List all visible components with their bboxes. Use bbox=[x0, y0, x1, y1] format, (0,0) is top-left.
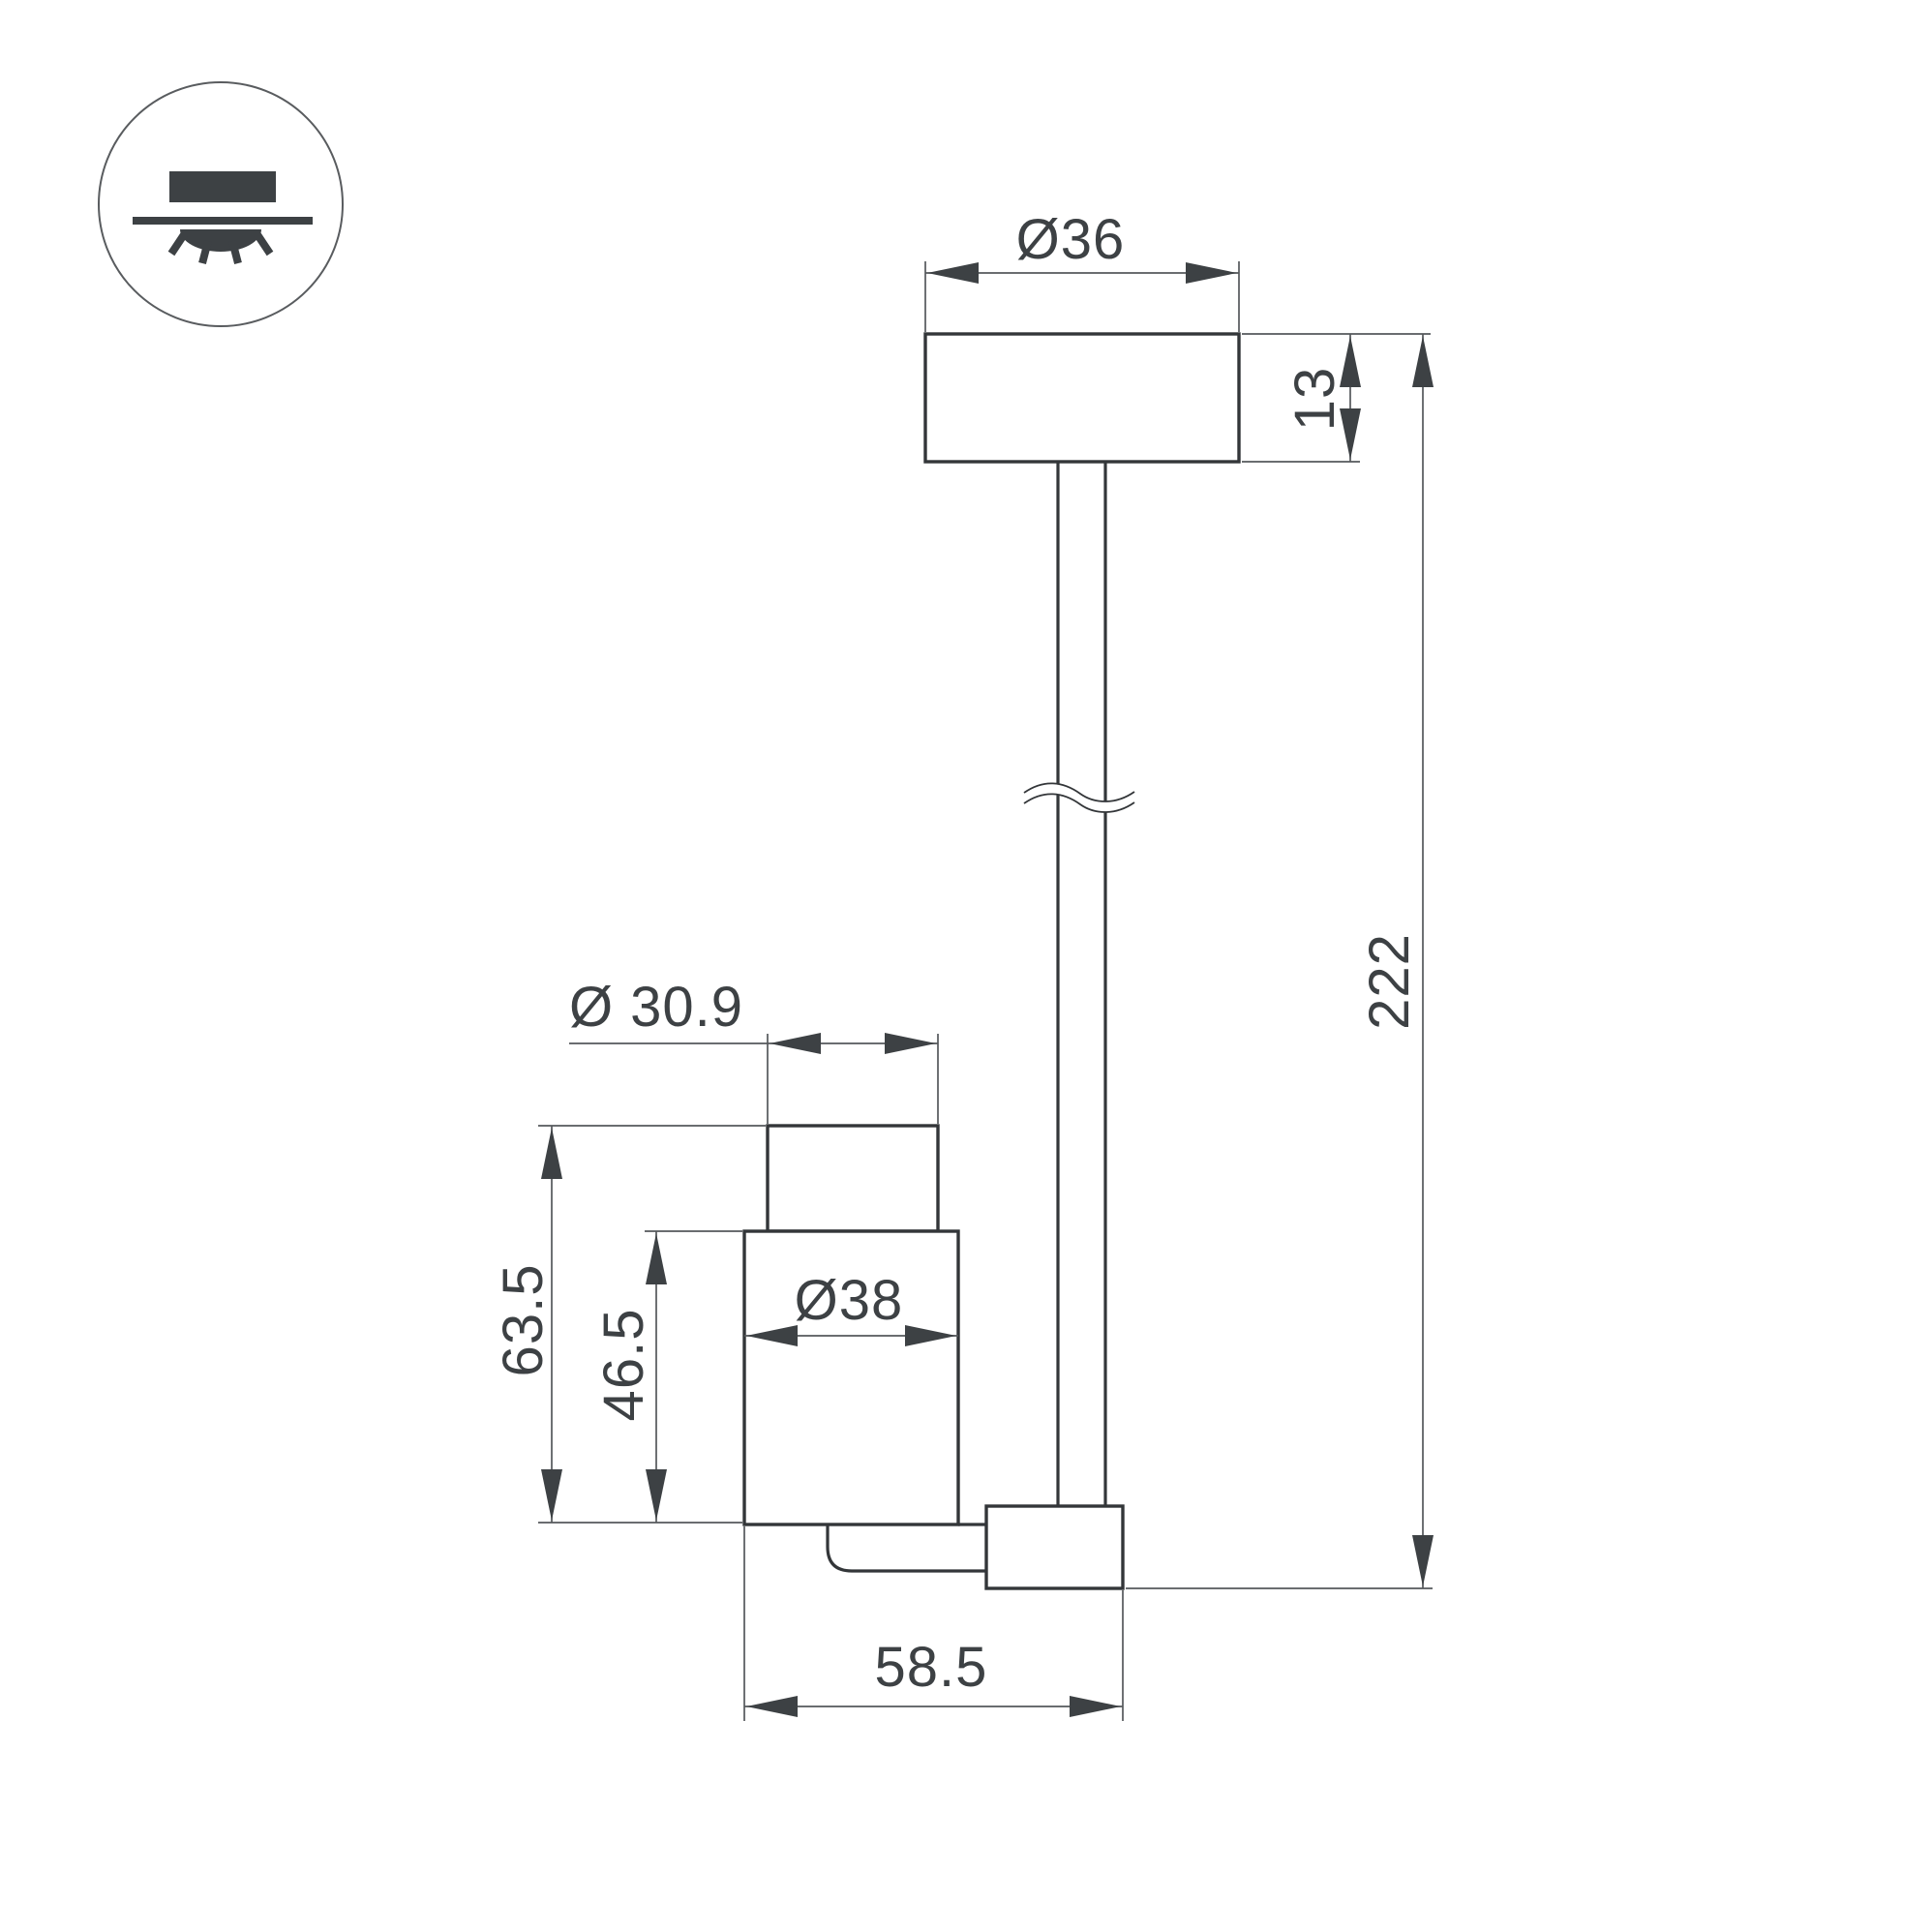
dimension-label-canopy-diameter: Ø36 bbox=[1016, 208, 1126, 271]
dimension-label-head-total-height: 63.5 bbox=[492, 1264, 555, 1377]
dimension-label-head-body-height: 46.5 bbox=[592, 1309, 655, 1422]
dimension-label-head-total-width: 58.5 bbox=[875, 1636, 988, 1699]
arrow-left-icon bbox=[927, 262, 979, 284]
dimension-head-top-diameter: Ø 30.9 bbox=[569, 976, 938, 1124]
fixture-outline bbox=[744, 334, 1239, 1588]
dimension-head-body-height: 46.5 bbox=[592, 1231, 742, 1523]
dimension-label-head-top-diameter: Ø 30.9 bbox=[569, 976, 743, 1039]
arrow-down-icon bbox=[646, 1469, 667, 1521]
arrow-down-icon bbox=[1412, 1535, 1434, 1586]
head-elbow-arm bbox=[828, 1524, 986, 1571]
technical-drawing-canvas: Ø36 13 222 Ø 30.9 63.5 bbox=[0, 0, 1932, 1932]
icon-circle-border bbox=[99, 82, 343, 326]
head-rear-cylinder bbox=[768, 1126, 938, 1231]
dimension-suspension-length: 222 bbox=[1126, 334, 1434, 1588]
arrow-down-icon bbox=[541, 1469, 562, 1521]
arrow-up-icon bbox=[1412, 336, 1434, 387]
arrow-left-icon bbox=[770, 1033, 821, 1054]
dimension-canopy-diameter: Ø36 bbox=[925, 208, 1239, 332]
ceiling-canopy bbox=[925, 334, 1239, 462]
dimension-label-head-body-diameter: Ø38 bbox=[795, 1269, 904, 1332]
icon-ceiling-line bbox=[133, 217, 313, 225]
icon-fixture-housing bbox=[169, 171, 276, 202]
arrow-left-icon bbox=[746, 1696, 798, 1717]
arrow-right-icon bbox=[1186, 262, 1237, 284]
arrow-up-icon bbox=[646, 1233, 667, 1284]
ceiling-surface-light-icon bbox=[99, 82, 343, 326]
arrow-up-icon bbox=[541, 1128, 562, 1179]
rod-break-mask bbox=[1024, 783, 1134, 812]
rod-connector-block bbox=[986, 1506, 1123, 1588]
arrow-right-icon bbox=[885, 1033, 936, 1054]
arrow-right-icon bbox=[1070, 1696, 1121, 1717]
dimension-label-suspension-length: 222 bbox=[1358, 933, 1421, 1030]
dimension-label-canopy-height: 13 bbox=[1283, 367, 1346, 432]
dimension-canopy-height: 13 bbox=[1242, 334, 1431, 462]
